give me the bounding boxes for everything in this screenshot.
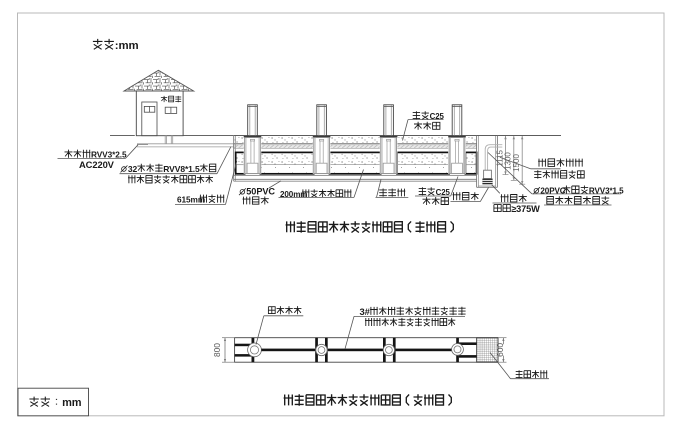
svg-text:3#: 3# bbox=[360, 306, 371, 317]
svg-text:50PVC: 50PVC bbox=[246, 187, 275, 197]
svg-text:mm: mm bbox=[62, 397, 82, 409]
svg-text:800: 800 bbox=[212, 343, 222, 357]
svg-text:32: 32 bbox=[128, 164, 138, 174]
svg-text:AC220V: AC220V bbox=[79, 159, 115, 170]
svg-text:≥375W: ≥375W bbox=[511, 204, 540, 214]
svg-text:600: 600 bbox=[495, 343, 505, 357]
svg-text:615mm: 615mm bbox=[177, 195, 205, 205]
svg-text::mm: :mm bbox=[115, 40, 139, 52]
svg-text:RVV8*1.5: RVV8*1.5 bbox=[163, 164, 200, 174]
